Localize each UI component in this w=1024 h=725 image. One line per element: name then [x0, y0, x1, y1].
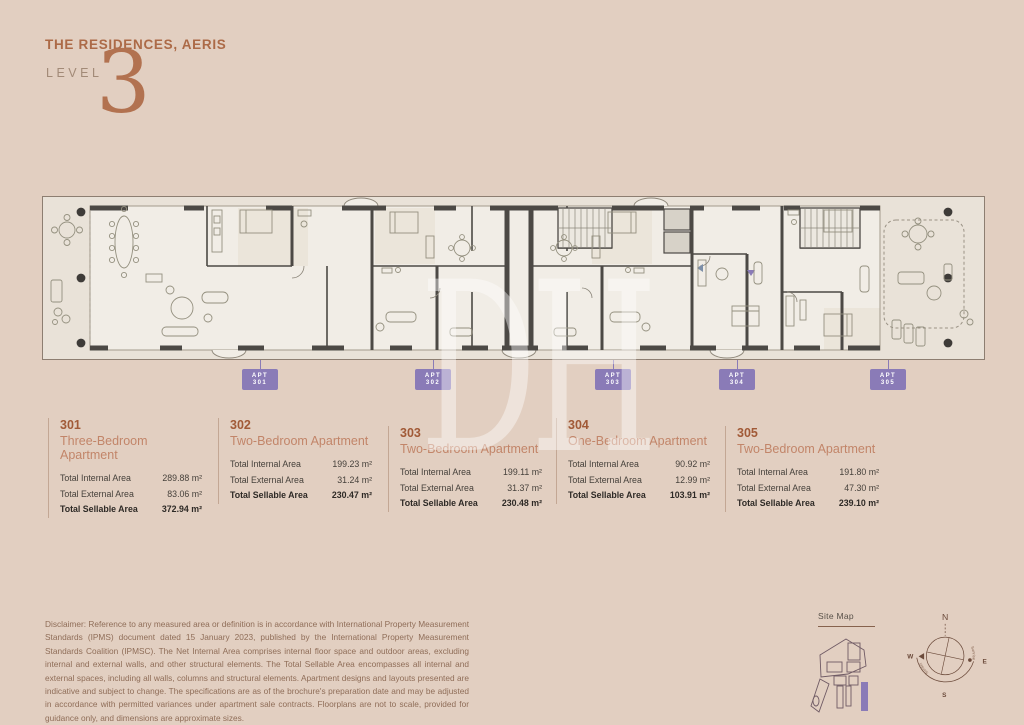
apt-tag-302: APT302 — [415, 360, 451, 390]
apartment-type: Two-Bedroom Apartment — [400, 442, 542, 456]
site-map-underline — [818, 626, 875, 627]
apartment-number: 304 — [568, 418, 710, 432]
area-row: Total Internal Area199.23 m² — [230, 457, 372, 473]
apt-tag-number: 304 — [719, 380, 755, 387]
area-row: Total Internal Area191.80 m² — [737, 465, 879, 481]
apartment-number: 301 — [60, 418, 202, 432]
apt-tag-connector — [737, 360, 738, 369]
apt-tag-label: APT — [719, 373, 755, 380]
area-value: 47.30 m² — [844, 481, 879, 497]
area-value: 199.11 m² — [503, 465, 542, 481]
area-label: Total Internal Area — [230, 457, 301, 473]
area-value: 199.23 m² — [332, 457, 372, 473]
area-label: Total Sellable Area — [737, 496, 815, 512]
apartment-number: 302 — [230, 418, 372, 432]
level-label: LEVEL — [46, 66, 102, 80]
site-map-highlighted-building — [861, 682, 868, 711]
apartment-304-details: 304 One-Bedroom Apartment Total Internal… — [556, 418, 710, 504]
area-row: Total External Area83.06 m² — [60, 487, 202, 503]
floor-plan-drawing — [42, 196, 985, 360]
area-row-total: Total Sellable Area372.94 m² — [60, 502, 202, 518]
compass-sunset-label: Sunset — [917, 661, 929, 675]
area-label: Total External Area — [400, 481, 474, 497]
apt-tag-connector — [260, 360, 261, 369]
area-label: Total Sellable Area — [400, 496, 478, 512]
compass-west-label: W — [907, 654, 914, 661]
apartment-303-details: 303 Two-Bedroom Apartment Total Internal… — [388, 426, 542, 512]
area-label: Total Internal Area — [60, 471, 131, 487]
level-number: 3 — [96, 40, 151, 126]
area-value: 90.92 m² — [675, 457, 710, 473]
area-value: 83.06 m² — [167, 487, 202, 503]
area-row: Total External Area31.37 m² — [400, 481, 542, 497]
apt-tag-label: APT — [595, 373, 631, 380]
compass: N W E S Sunset Sunrise — [903, 608, 991, 702]
area-label: Total External Area — [737, 481, 811, 497]
apt-tag-303: APT303 — [595, 360, 631, 390]
area-value: 12.99 m² — [675, 473, 710, 489]
apartment-type: Three-Bedroom Apartment — [60, 434, 202, 462]
compass-south-label: S — [942, 692, 947, 699]
disclaimer-text: Disclaimer: Reference to any measured ar… — [45, 618, 469, 725]
apartment-302-details: 302 Two-Bedroom Apartment Total Internal… — [218, 418, 372, 504]
apt-tag-number: 305 — [870, 380, 906, 387]
area-value: 31.37 m² — [507, 481, 542, 497]
area-label: Total Internal Area — [400, 465, 471, 481]
apt-tag-305: APT305 — [870, 360, 906, 390]
floor-plan — [42, 196, 985, 360]
area-label: Total Sellable Area — [60, 502, 138, 518]
compass-west-marker-icon — [919, 653, 925, 659]
apartment-305-details: 305 Two-Bedroom Apartment Total Internal… — [725, 426, 879, 512]
area-value: 191.80 m² — [839, 465, 879, 481]
area-label: Total Sellable Area — [230, 488, 308, 504]
apartment-type: Two-Bedroom Apartment — [230, 434, 372, 448]
apt-tag-number: 302 — [415, 380, 451, 387]
area-label: Total External Area — [60, 487, 134, 503]
area-value: 239.10 m² — [839, 496, 879, 512]
area-label: Total Internal Area — [568, 457, 639, 473]
area-label: Total External Area — [568, 473, 642, 489]
apartment-number: 305 — [737, 426, 879, 440]
building-interior — [90, 206, 880, 350]
site-map-label: Site Map — [818, 611, 854, 621]
compass-crosshair — [923, 634, 966, 677]
apt-tag-connector — [613, 360, 614, 369]
area-row-total: Total Sellable Area239.10 m² — [737, 496, 879, 512]
apartment-number: 303 — [400, 426, 542, 440]
area-row: Total Internal Area199.11 m² — [400, 465, 542, 481]
area-label: Total External Area — [230, 473, 304, 489]
apt-tag-connector — [433, 360, 434, 369]
site-map-drawing — [806, 634, 882, 716]
apt-tag-number: 303 — [595, 380, 631, 387]
compass-east-marker-icon — [968, 658, 972, 662]
apartment-type: Two-Bedroom Apartment — [737, 442, 879, 456]
apt-tag-label: APT — [870, 373, 906, 380]
area-label: Total Internal Area — [737, 465, 808, 481]
area-value: 31.24 m² — [337, 473, 372, 489]
apartment-301-details: 301 Three-Bedroom Apartment Total Intern… — [48, 418, 202, 518]
area-row-total: Total Sellable Area230.48 m² — [400, 496, 542, 512]
area-row: Total External Area47.30 m² — [737, 481, 879, 497]
apt-tag-connector — [888, 360, 889, 369]
apt-tag-304: APT304 — [719, 360, 755, 390]
area-row: Total Internal Area289.88 m² — [60, 471, 202, 487]
apt-tag-label: APT — [242, 373, 278, 380]
area-label: Total Sellable Area — [568, 488, 646, 504]
area-row: Total External Area12.99 m² — [568, 473, 710, 489]
area-row: Total External Area31.24 m² — [230, 473, 372, 489]
apartment-type: One-Bedroom Apartment — [568, 434, 710, 448]
area-value: 372.94 m² — [162, 502, 202, 518]
compass-north-label: N — [942, 612, 948, 622]
apt-tag-label: APT — [415, 373, 451, 380]
area-row: Total Internal Area90.92 m² — [568, 457, 710, 473]
area-value: 230.48 m² — [502, 496, 542, 512]
apt-tag-301: APT301 — [242, 360, 278, 390]
area-value: 103.91 m² — [670, 488, 710, 504]
area-row-total: Total Sellable Area103.91 m² — [568, 488, 710, 504]
area-value: 230.47 m² — [332, 488, 372, 504]
apt-tag-number: 301 — [242, 380, 278, 387]
area-row-total: Total Sellable Area230.47 m² — [230, 488, 372, 504]
area-value: 289.88 m² — [162, 471, 202, 487]
compass-east-label: E — [982, 658, 987, 665]
